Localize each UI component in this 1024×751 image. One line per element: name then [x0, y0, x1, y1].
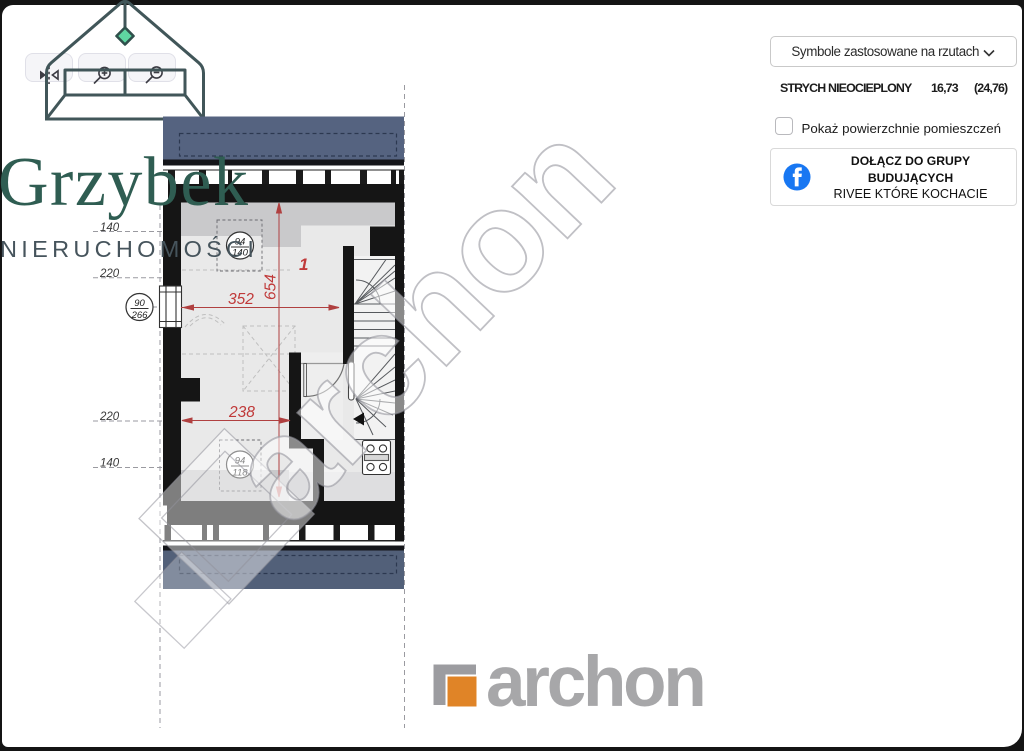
svg-text:140: 140: [100, 222, 120, 234]
svg-text:220: 220: [99, 411, 120, 423]
svg-text:352: 352: [228, 291, 254, 308]
svg-text:90: 90: [134, 298, 145, 309]
svg-text:654: 654: [263, 274, 280, 300]
svg-text:140: 140: [100, 458, 120, 470]
svg-text:1: 1: [299, 255, 308, 274]
svg-text:266: 266: [131, 310, 149, 321]
svg-text:220: 220: [99, 268, 120, 280]
